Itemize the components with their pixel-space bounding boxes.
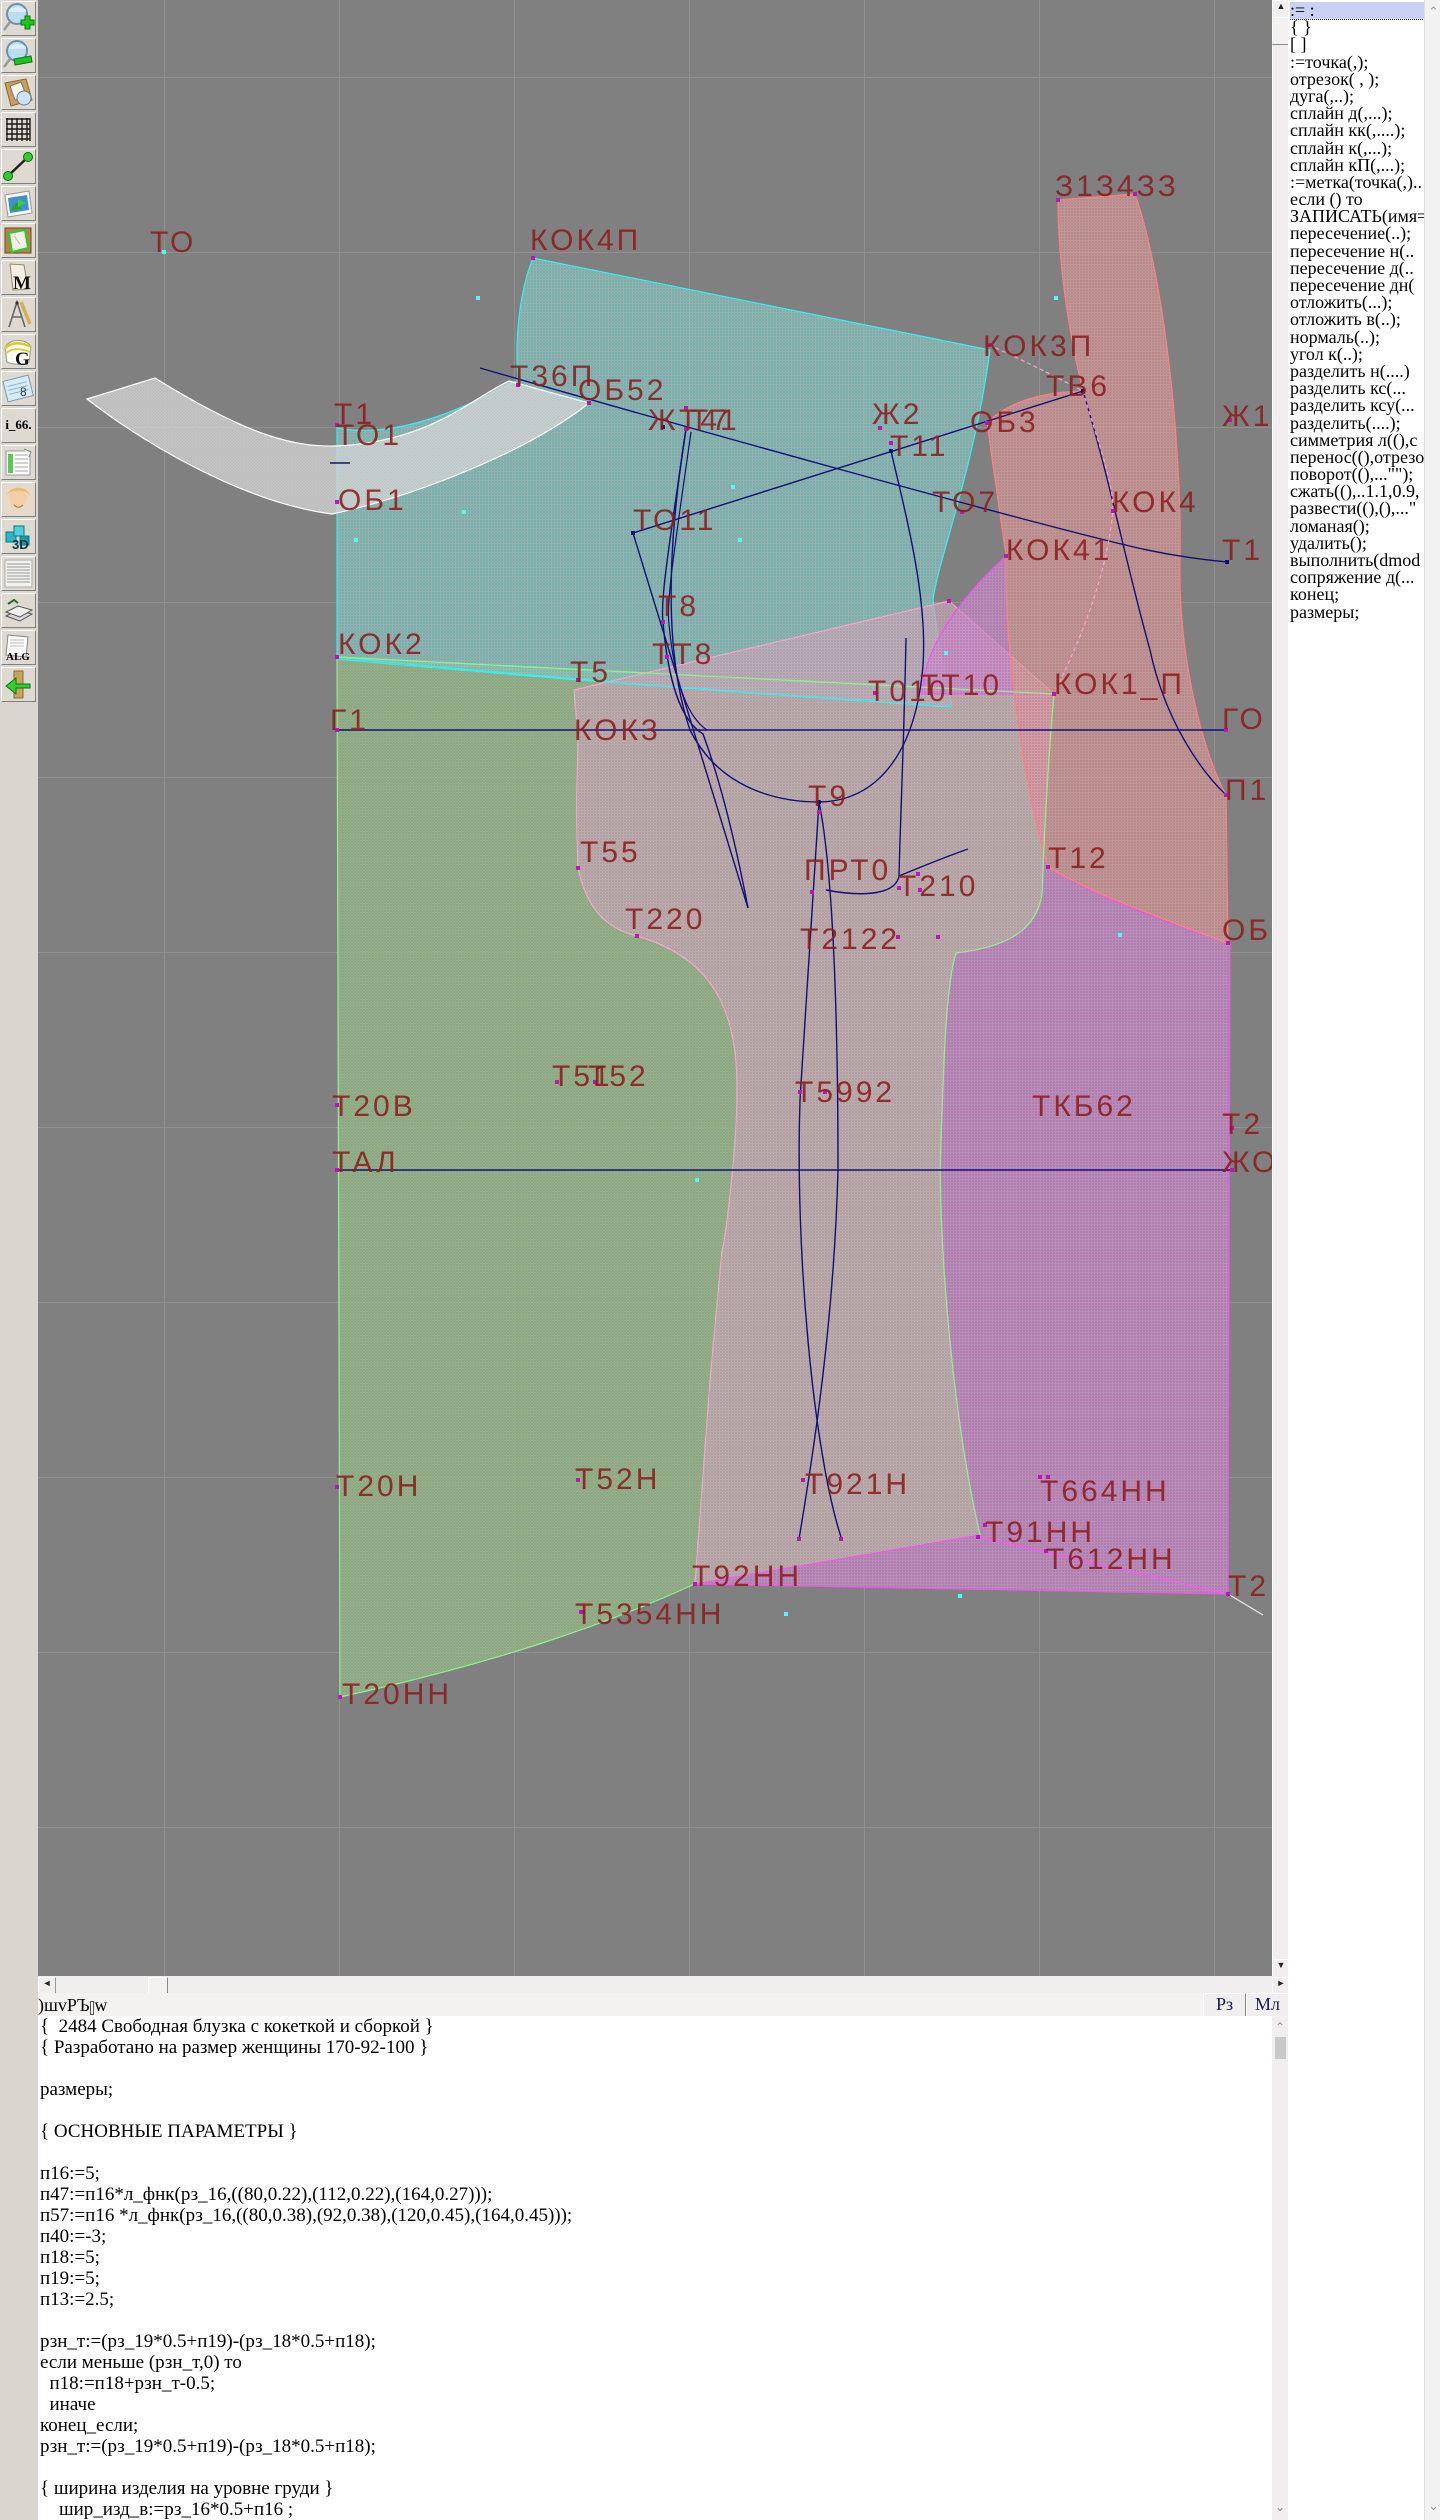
svg-text:ALG: ALG [6,651,30,663]
svg-text:Т92НН: Т92НН [692,1560,802,1593]
svg-text:Т20В: Т20В [332,1090,416,1123]
svg-text:КОК4П: КОК4П [530,224,641,257]
svg-text:ТКБ62: ТКБ62 [1032,1090,1136,1123]
svg-text:3D: 3D [12,537,29,552]
svg-text:ЖО: ЖО [1222,1146,1272,1179]
svg-text:Т11: Т11 [890,430,948,463]
svg-text:КОК3П: КОК3П [983,330,1094,363]
svg-text:Т921Н: Т921Н [805,1468,910,1501]
svg-text:8: 8 [20,385,27,399]
svg-text:Г1: Г1 [330,704,369,737]
svg-text:Т2: Т2 [1222,1108,1263,1141]
svg-text:Т8: Т8 [658,590,699,623]
svg-text:Ж1: Ж1 [1222,400,1272,433]
svg-text:ГО: ГО [1222,703,1266,736]
svg-text:Т9: Т9 [808,780,849,813]
svg-text:Т220: Т220 [625,903,705,936]
svg-text:Т7: Т7 [690,404,731,437]
svg-text:Т20НН: Т20НН [342,1678,452,1711]
svg-text:ПРТ0: ПРТ0 [804,854,891,887]
svg-text:Т2122: Т2122 [800,923,900,956]
svg-text:ТТ10: ТТ10 [920,669,1002,702]
svg-text:Т20Н: Т20Н [336,1470,421,1503]
svg-text:Т5992: Т5992 [795,1076,895,1109]
svg-text:КОК1_П: КОК1_П [1054,668,1185,701]
svg-text:Т1: Т1 [1222,534,1263,567]
svg-text:КОК4: КОК4 [1112,486,1199,519]
svg-text:Т12: Т12 [1048,842,1109,875]
svg-text:M: M [13,273,31,294]
svg-text:G: G [15,349,30,368]
svg-text:Т612НН: Т612НН [1046,1543,1176,1576]
svg-text:ОБ: ОБ [1222,914,1271,947]
svg-text:Т210: Т210 [898,870,978,903]
svg-text:Т52: Т52 [588,1060,649,1093]
svg-text:КОК2: КОК2 [338,628,425,661]
svg-text:ОБ3: ОБ3 [970,406,1039,439]
svg-text:ТТ8: ТТ8 [652,638,714,671]
svg-text:ТО11: ТО11 [633,504,716,537]
svg-text:З1З4ЗЗ: З1З4ЗЗ [1055,170,1179,203]
svg-text:П1: П1 [1225,774,1269,807]
svg-text:ОБ1: ОБ1 [338,484,407,517]
svg-text:КОК3: КОК3 [574,714,661,747]
svg-text:Т5354НН: Т5354НН [575,1598,724,1631]
svg-text:Т2: Т2 [1228,1570,1269,1603]
svg-text:ТО1: ТО1 [336,419,402,452]
svg-text:ОБ52: ОБ52 [578,374,666,407]
svg-text:Т52Н: Т52Н [575,1463,660,1496]
svg-text:КОК41: КОК41 [1006,534,1112,567]
svg-text:Т664НН: Т664НН [1040,1475,1170,1508]
svg-text:ТО: ТО [150,226,196,259]
svg-text:Т5: Т5 [570,656,611,689]
svg-text:ТВ6: ТВ6 [1046,370,1110,403]
svg-text:Ж2: Ж2 [872,398,922,431]
svg-text:Т55: Т55 [580,836,641,869]
svg-text:ТАЛ: ТАЛ [332,1146,399,1179]
svg-text:ТО7: ТО7 [932,486,998,519]
